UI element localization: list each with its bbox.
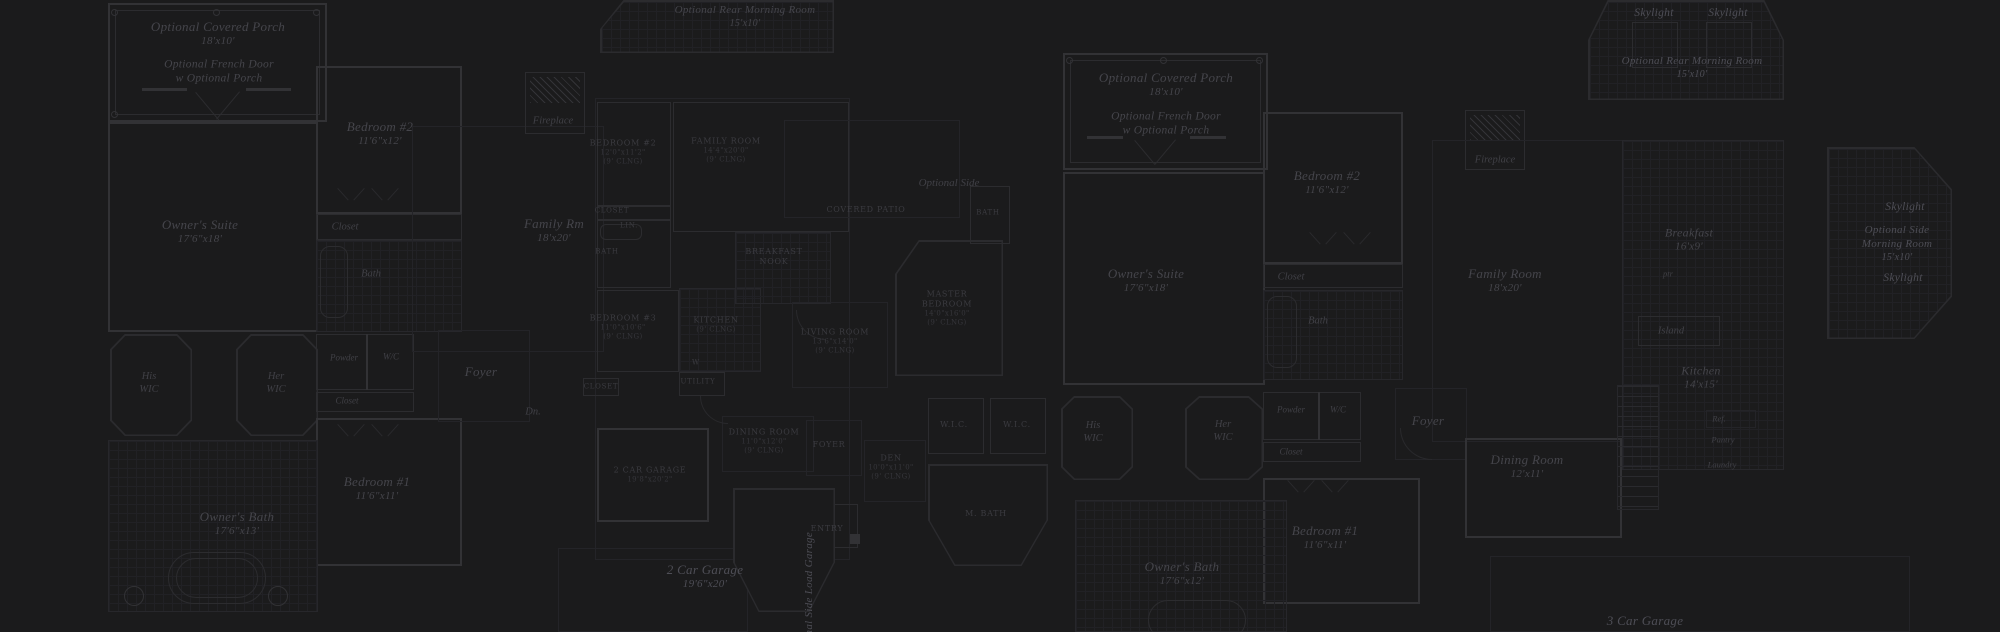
label-side-load-garage: Optional Side Load Garage <box>803 532 817 632</box>
label-powder-a: Powder <box>330 352 358 363</box>
blueprint-canvas: Optional Covered Porch18'x10' Optional F… <box>0 0 2000 632</box>
label-garage-b: 2 CAR GARAGE19'8"x20'2" <box>614 466 687 485</box>
label-skylight1-c: Skylight <box>1634 6 1673 20</box>
label-owners-suite-a: Owner's Suite17'6"x18' <box>162 217 238 247</box>
breakfast-nook-b <box>735 232 831 304</box>
fireplace-hatch-b <box>530 77 580 103</box>
label-family-rm-a: Family Rm18'x20' <box>524 216 584 246</box>
closet-chevron <box>1288 480 1314 494</box>
label-kitchen-c: Kitchen14'x15' <box>1681 364 1720 393</box>
wall <box>366 334 368 390</box>
label-side-morning-c: Optional SideMorning Room15'x10' <box>1862 224 1933 264</box>
label-den-b: DEN10'0"x11'0"(9' CLNG) <box>868 453 913 481</box>
label-optional-side-b: Optional Side <box>919 177 980 191</box>
fireplace-hatch-c <box>1470 115 1520 140</box>
closet2-a <box>316 392 414 412</box>
covered-patio-b <box>784 120 960 218</box>
label-ptr-c: ptr <box>1663 269 1673 280</box>
sink-a <box>124 586 144 606</box>
porch-post-c <box>1160 57 1167 64</box>
label-kitchen-b: KITCHEN(9' CLNG) <box>693 316 738 335</box>
bathtub-a <box>320 246 348 318</box>
label-breakfast-c: Breakfast16'x9' <box>1665 226 1713 255</box>
label-washer-b: W <box>692 359 700 368</box>
label-fireplace-c: Fireplace <box>1475 153 1515 166</box>
entry-bay-b <box>733 488 835 612</box>
label-breakfast-nook-b: BREAKFASTNOOK <box>745 247 802 267</box>
label-pantry-c: Pantry <box>1711 435 1734 446</box>
label-wc-c: W/C <box>1330 404 1346 415</box>
label-closet2-b: CLOSET <box>584 383 619 392</box>
label-his-wic-a: HisWIC <box>139 370 158 396</box>
label-entry-b: ENTRY <box>811 524 844 534</box>
label-closet2-a: Closet <box>335 395 358 406</box>
label-porch-c: Optional Covered Porch18'x10' <box>1099 70 1233 100</box>
label-rear-morning-c: Optional Rear Morning Room15'x10' <box>1622 55 1763 81</box>
stairs-c <box>1617 385 1659 510</box>
label-closet-b: CLOSET <box>595 207 630 216</box>
label-bedroom2-c: Bedroom #211'6"x12' <box>1294 168 1360 198</box>
label-living-b: LIVING ROOM13'6"x14'0"(9' CLNG) <box>801 327 869 355</box>
label-bath-c: Bath <box>1308 314 1328 327</box>
closet-chevron <box>1344 232 1370 246</box>
entry-post-b <box>850 534 860 544</box>
closet-chevron <box>1310 232 1336 246</box>
label-dining-c: Dining Room12'x11' <box>1491 452 1564 482</box>
wall <box>1318 392 1320 440</box>
rear-morning-room-c <box>1588 0 1784 100</box>
label-garage-a: 2 Car Garage19'6"x20' <box>667 562 744 592</box>
sink-a <box>268 586 288 606</box>
label-skylight3-c: Skylight <box>1885 200 1924 214</box>
label-foyer-b: FOYER <box>813 440 846 450</box>
porch-post-a <box>213 9 220 16</box>
porch-post-a <box>313 9 320 16</box>
label-bedroom2-b: BEDROOM #212'0"x11'2"(9' CLNG) <box>590 138 657 166</box>
label-skylight4-c: Skylight <box>1883 271 1922 285</box>
porch-post-a <box>111 111 118 118</box>
label-bedroom2-a: Bedroom #211'6"x12' <box>347 119 413 149</box>
label-bedroom3-b: BEDROOM #311'0"x10'6"(9' CLNG) <box>590 313 657 341</box>
label-utility-b: UTILITY <box>681 378 716 387</box>
closet-chevron <box>372 188 398 202</box>
closet-chevron <box>372 424 398 438</box>
porch-post-c <box>1256 57 1263 64</box>
label-bath-b: BATH <box>595 248 618 257</box>
label-foyer-c: Foyer <box>1412 413 1445 429</box>
label-powder-c: Powder <box>1277 404 1305 415</box>
label-wc-a: W/C <box>383 351 399 362</box>
label-her-wic-c: HerWIC <box>1213 418 1232 444</box>
label-owners-bath-a: Owner's Bath17'6"x13' <box>200 509 275 539</box>
powder-c <box>1263 392 1361 440</box>
french-door-a <box>246 88 291 91</box>
label-rear-morning-b: Optional Rear Morning Room15'x10' <box>675 4 816 30</box>
french-door-a <box>142 88 187 91</box>
label-dining-b: DINING ROOM11'0"x12'0"(9' CLNG) <box>729 427 800 455</box>
porch-post-c <box>1066 57 1073 64</box>
closet-chevron <box>1322 480 1348 494</box>
porch-post-a <box>111 9 118 16</box>
label-closet2-c: Closet <box>1279 446 1302 457</box>
label-dn-a: Dn. <box>525 405 540 418</box>
label-master-b: MASTERBEDROOM14'0"x16'0"(9' CLNG) <box>922 289 972 327</box>
label-wic1-b: W.I.C. <box>940 420 968 430</box>
label-bath-a: Bath <box>361 267 381 280</box>
closet2-c <box>1263 442 1361 462</box>
label-closet-c: Closet <box>1278 270 1305 283</box>
garage-c <box>1490 556 1910 632</box>
label-bedroom1-c: Bedroom #111'6"x11' <box>1292 523 1358 553</box>
label-french-door-a: Optional French Doorw Optional Porch <box>164 58 274 87</box>
label-ref-c: Ref. <box>1712 414 1725 425</box>
label-french-door-c: Optional French Doorw Optional Porch <box>1111 110 1221 139</box>
label-his-wic-c: HisWIC <box>1083 419 1102 445</box>
label-closet-a: Closet <box>332 220 359 233</box>
label-her-wic-a: HerWIC <box>266 370 285 396</box>
bathtub-c <box>1267 296 1297 368</box>
label-family-room-c: Family Room18'x20' <box>1468 266 1542 296</box>
label-fireplace-b: Fireplace <box>533 114 573 127</box>
label-owners-suite-c: Owner's Suite17'6"x18' <box>1108 266 1184 296</box>
label-mbath-b: M. BATH <box>965 509 1007 519</box>
closet-chevron <box>338 188 364 202</box>
label-lin-b: LIN. <box>620 222 638 231</box>
garden-tub-c <box>1148 600 1246 632</box>
label-porch-a: Optional Covered Porch18'x10' <box>151 19 285 49</box>
label-wic2-b: W.I.C. <box>1003 420 1031 430</box>
label-family-room-b: FAMILY ROOM14'4"x20'0"(9' CLNG) <box>691 136 761 164</box>
label-laundry-c: Laundry <box>1708 460 1737 471</box>
label-foyer-a: Foyer <box>465 364 498 380</box>
label-bath2-b: BATH <box>976 209 999 218</box>
label-island-c: Island <box>1658 324 1684 337</box>
label-bedroom1-a: Bedroom #111'6"x11' <box>344 474 410 504</box>
label-covered-patio-b: COVERED PATIO <box>826 205 905 215</box>
closet-chevron <box>338 424 364 438</box>
label-garage-c: 3 Car Garage <box>1607 613 1684 629</box>
label-owners-bath-c: Owner's Bath17'6"x12' <box>1145 559 1220 589</box>
garden-tub-a-inner <box>176 558 258 598</box>
label-skylight2-c: Skylight <box>1708 6 1747 20</box>
